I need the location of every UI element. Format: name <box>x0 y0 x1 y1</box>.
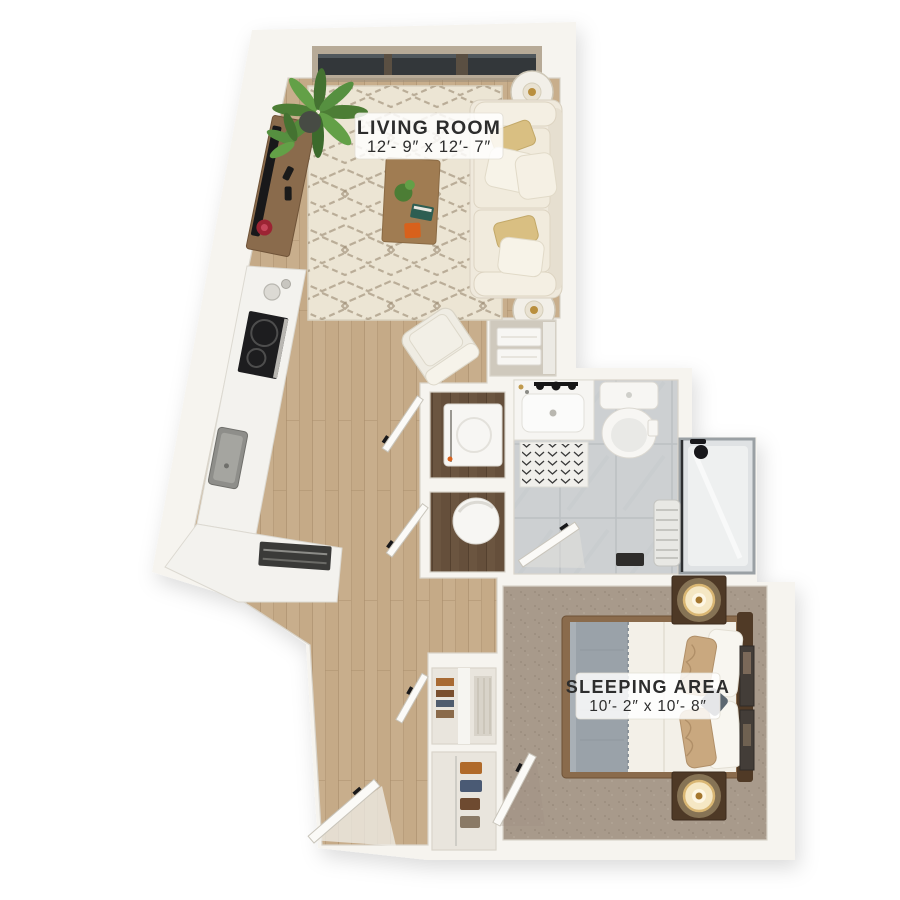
laundry-basket <box>453 498 499 544</box>
window-mullion <box>384 54 392 75</box>
floor-plan-rendering: LIVING ROOM 12′- 9″ x 12′- 7″ SLEEPING A… <box>0 0 900 900</box>
shower-arm <box>690 439 706 444</box>
shoes <box>460 798 480 810</box>
white-pillow <box>514 152 558 201</box>
frame-art <box>743 724 751 746</box>
window-glass-highlight <box>318 54 536 58</box>
flush-button <box>626 392 632 398</box>
living-room-label: LIVING ROOM 12′- 9″ x 12′- 7″ <box>355 113 503 159</box>
towel-ring <box>648 420 658 436</box>
window-wall <box>312 46 542 82</box>
coffee-table <box>382 158 440 245</box>
shoes <box>460 762 482 774</box>
faucet-knob <box>568 382 576 390</box>
window-sill <box>312 78 542 82</box>
linen-closet-panel <box>543 322 555 374</box>
prep-sink <box>264 284 280 300</box>
white-pillow <box>497 236 545 277</box>
faucet-spout <box>552 382 561 391</box>
sink-drain <box>550 410 557 417</box>
hanging-clothes <box>474 676 492 736</box>
living-room-dimensions: 12′- 9″ x 12′- 7″ <box>367 138 491 156</box>
folded-clothes <box>436 710 454 718</box>
game-controller <box>285 186 292 200</box>
living-room-name: LIVING ROOM <box>357 117 501 139</box>
accessory <box>525 390 529 394</box>
sleeping-area-label: SLEEPING AREA 10′- 2″ x 10′- 8″ <box>566 673 731 719</box>
floor-plan-page: LIVING ROOM 12′- 9″ x 12′- 7″ SLEEPING A… <box>0 0 900 900</box>
faucet-knob <box>536 382 544 390</box>
bath-scale <box>616 553 644 566</box>
sleeping-area-dimensions: 10′- 2″ x 10′- 8″ <box>589 698 706 715</box>
washer-indicator <box>448 457 453 462</box>
plant-pot <box>299 111 321 133</box>
faucet <box>282 280 291 289</box>
decor-box <box>404 223 421 239</box>
linen-closet <box>490 320 556 376</box>
washer <box>444 404 502 466</box>
nightstand-top <box>672 576 726 624</box>
toilet-seat <box>611 418 647 452</box>
shoes <box>460 816 480 828</box>
shower-head <box>694 445 708 459</box>
folded-clothes <box>436 700 454 707</box>
folded-clothes <box>436 690 454 697</box>
folded-clothes <box>436 678 454 686</box>
window-mullion <box>456 54 468 75</box>
frame-art <box>743 652 751 674</box>
lamp-finial <box>696 597 703 604</box>
dishwasher <box>258 542 331 571</box>
closet-divider <box>458 668 470 744</box>
table-lamp <box>528 88 536 96</box>
bath-mat <box>520 442 588 487</box>
bathroom-vanity <box>514 380 594 440</box>
nightstand-bottom <box>672 772 726 820</box>
shoes <box>460 780 482 792</box>
table-lamp <box>530 306 538 314</box>
lamp-finial <box>696 793 703 800</box>
soap-dish <box>519 385 524 390</box>
sofa-armrest <box>474 272 556 296</box>
blanket-fold <box>570 622 576 772</box>
towel <box>654 500 680 566</box>
sleeping-area-name: SLEEPING AREA <box>566 677 731 697</box>
